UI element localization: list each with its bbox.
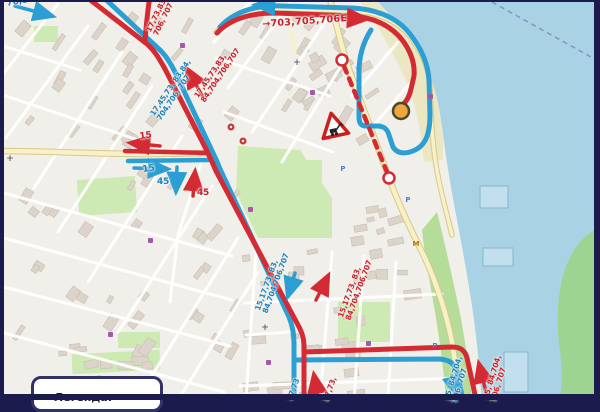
restaurant-m-icon: M	[413, 240, 420, 248]
legend-box: Легенда:	[31, 376, 163, 412]
arrow-blue-west-top	[256, 5, 305, 7]
city-transit-detour-map[interactable]: P P P + + + M 76,83 17,73,83, 706, 707 →…	[0, 0, 600, 400]
arrow-blue-south-45	[176, 167, 177, 191]
route-blue-west-street	[128, 160, 208, 161]
map-canvas: P P P + + + M	[0, 0, 600, 400]
svg-text:P: P	[432, 342, 437, 350]
arrow-red-north-45	[193, 172, 195, 196]
route-red-west-street	[125, 151, 208, 153]
svg-text:P: P	[340, 165, 345, 173]
legend-title: Легенда:	[54, 391, 112, 404]
closure-endpoint-south	[384, 173, 395, 184]
terminus-orange-dot	[393, 103, 409, 119]
svg-text:P: P	[405, 196, 410, 204]
route-label-15-blue: 15	[142, 164, 155, 175]
svg-text:+: +	[261, 323, 269, 333]
svg-text:+: +	[293, 58, 301, 68]
route-label-45-red: 45	[197, 189, 209, 199]
svg-text:+: +	[6, 154, 14, 164]
route-label-15-red: 15	[139, 131, 152, 142]
route-label-45-blue: 45	[157, 178, 169, 188]
closure-endpoint-north	[337, 55, 348, 66]
